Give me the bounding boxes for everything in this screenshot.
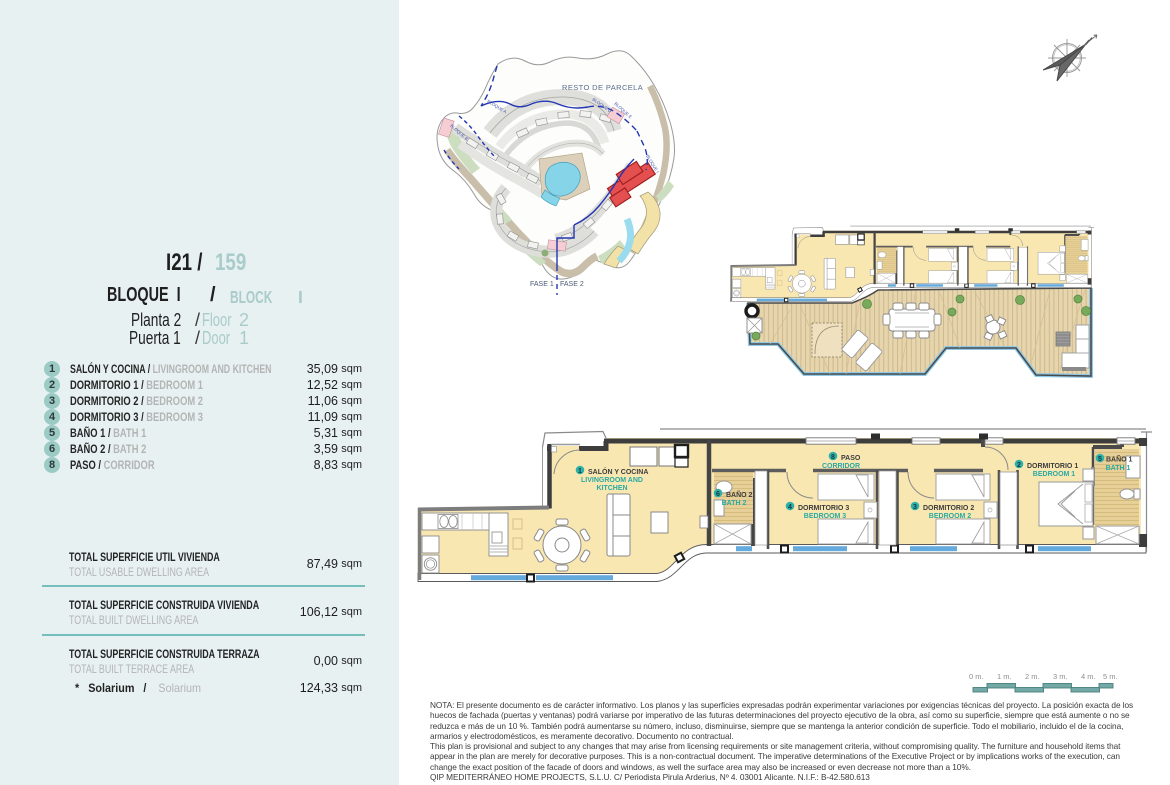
svg-text:BEDROOM 3: BEDROOM 3 [804,513,847,520]
svg-text:KITCHEN: KITCHEN [596,485,627,492]
svg-text:CORRIDOR: CORRIDOR [822,463,860,470]
svg-text:4 m.: 4 m. [1081,672,1096,681]
svg-text:2 m.: 2 m. [1025,672,1040,681]
svg-text:2: 2 [1017,462,1021,469]
svg-text:FASE 1: FASE 1 [530,281,554,288]
svg-text:8: 8 [831,454,835,461]
svg-text:LIVINGROOM AND: LIVINGROOM AND [581,477,643,484]
svg-text:5 m.: 5 m. [1103,672,1118,681]
svg-text:6: 6 [716,491,720,498]
svg-text:3 m.: 3 m. [1053,672,1068,681]
svg-text:BAÑO 1: BAÑO 1 [1106,455,1133,464]
svg-text:4: 4 [788,504,792,511]
svg-text:5: 5 [1098,456,1102,463]
svg-text:DORMITORIO 1: DORMITORIO 1 [1027,463,1078,470]
svg-text:1: 1 [578,468,582,475]
svg-text:0 m.: 0 m. [969,672,984,681]
svg-text:PASO: PASO [841,455,861,462]
svg-text:DORMITORIO 2: DORMITORIO 2 [923,505,974,512]
svg-text:DORMITORIO 3: DORMITORIO 3 [798,505,849,512]
svg-text:RESTO DE PARCELA: RESTO DE PARCELA [562,83,643,92]
svg-text:BEDROOM 2: BEDROOM 2 [929,513,972,520]
svg-text:BAÑO 2: BAÑO 2 [726,490,753,499]
svg-text:FASE 2: FASE 2 [560,281,584,288]
svg-text:BATH 2: BATH 2 [722,500,747,507]
svg-text:BATH 1: BATH 1 [1106,465,1131,472]
svg-text:3: 3 [913,504,917,511]
svg-text:SALÓN Y COCINA: SALÓN Y COCINA [588,467,648,476]
svg-text:1 m.: 1 m. [997,672,1012,681]
svg-text:BEDROOM 1: BEDROOM 1 [1033,471,1076,478]
